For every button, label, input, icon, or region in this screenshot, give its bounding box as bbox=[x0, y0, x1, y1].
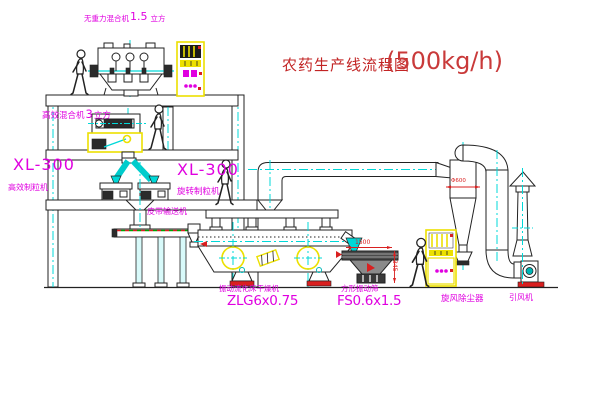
diagram-title-capacity: (500kg/h) bbox=[386, 47, 503, 75]
label-dryer-model: ZLG6x0.75 bbox=[227, 295, 298, 309]
granulator-right bbox=[138, 176, 170, 200]
label-cyclone: 旋风除尘器 bbox=[441, 295, 484, 304]
label-number: 3 bbox=[86, 109, 93, 121]
dimension-screen-length: 1500 bbox=[355, 240, 370, 246]
label-fan: 引风机 bbox=[509, 294, 533, 302]
fluid-bed-dryer bbox=[194, 210, 357, 287]
label-no-gravity-mixer: 无重力混合机 1.5 立方 bbox=[84, 11, 166, 22]
label-granulator-left-name: 高效制粒机 bbox=[8, 184, 48, 192]
granulator-left bbox=[100, 176, 132, 200]
label-granulator-mid-name: 旋转制粒机 bbox=[177, 188, 220, 197]
induced-draft-fan bbox=[514, 261, 544, 287]
label-granulator-mid-model: XL-300 bbox=[177, 162, 239, 178]
label-dryer-name: 振动流化床干燥机 bbox=[219, 285, 279, 293]
label-unit: 立方 bbox=[94, 112, 111, 121]
label-unit: 立方 bbox=[151, 15, 166, 23]
dimension-screen-outlet-height: 345 bbox=[391, 260, 397, 271]
control-cabinet-top bbox=[177, 42, 204, 96]
control-cabinet-bottom bbox=[426, 230, 456, 286]
no-gravity-mixer bbox=[88, 40, 174, 97]
person-top-floor bbox=[71, 50, 88, 95]
label-text: 高效混合机 bbox=[42, 112, 85, 121]
label-screen-name: 方形振动筛 bbox=[341, 285, 379, 293]
belt-conveyor bbox=[112, 229, 198, 287]
dimension-cyclone-diameter: Φ600 bbox=[451, 179, 466, 185]
label-granulator-left-model: XL-300 bbox=[13, 157, 75, 173]
label-number: 1.5 bbox=[130, 11, 148, 22]
label-screen-model: FS0.6x1.5 bbox=[337, 295, 401, 309]
label-mixer: 高效混合机 3 立方 bbox=[42, 109, 111, 121]
label-belt-conveyor: 皮带输送机 bbox=[147, 208, 187, 216]
process-flow-diagram: 无重力混合机 1.5 立方 农药生产线流程图 (500kg/h) 高效混合机 3… bbox=[0, 0, 600, 403]
label-text: 无重力混合机 bbox=[84, 15, 129, 23]
exhaust-duct bbox=[248, 160, 452, 212]
